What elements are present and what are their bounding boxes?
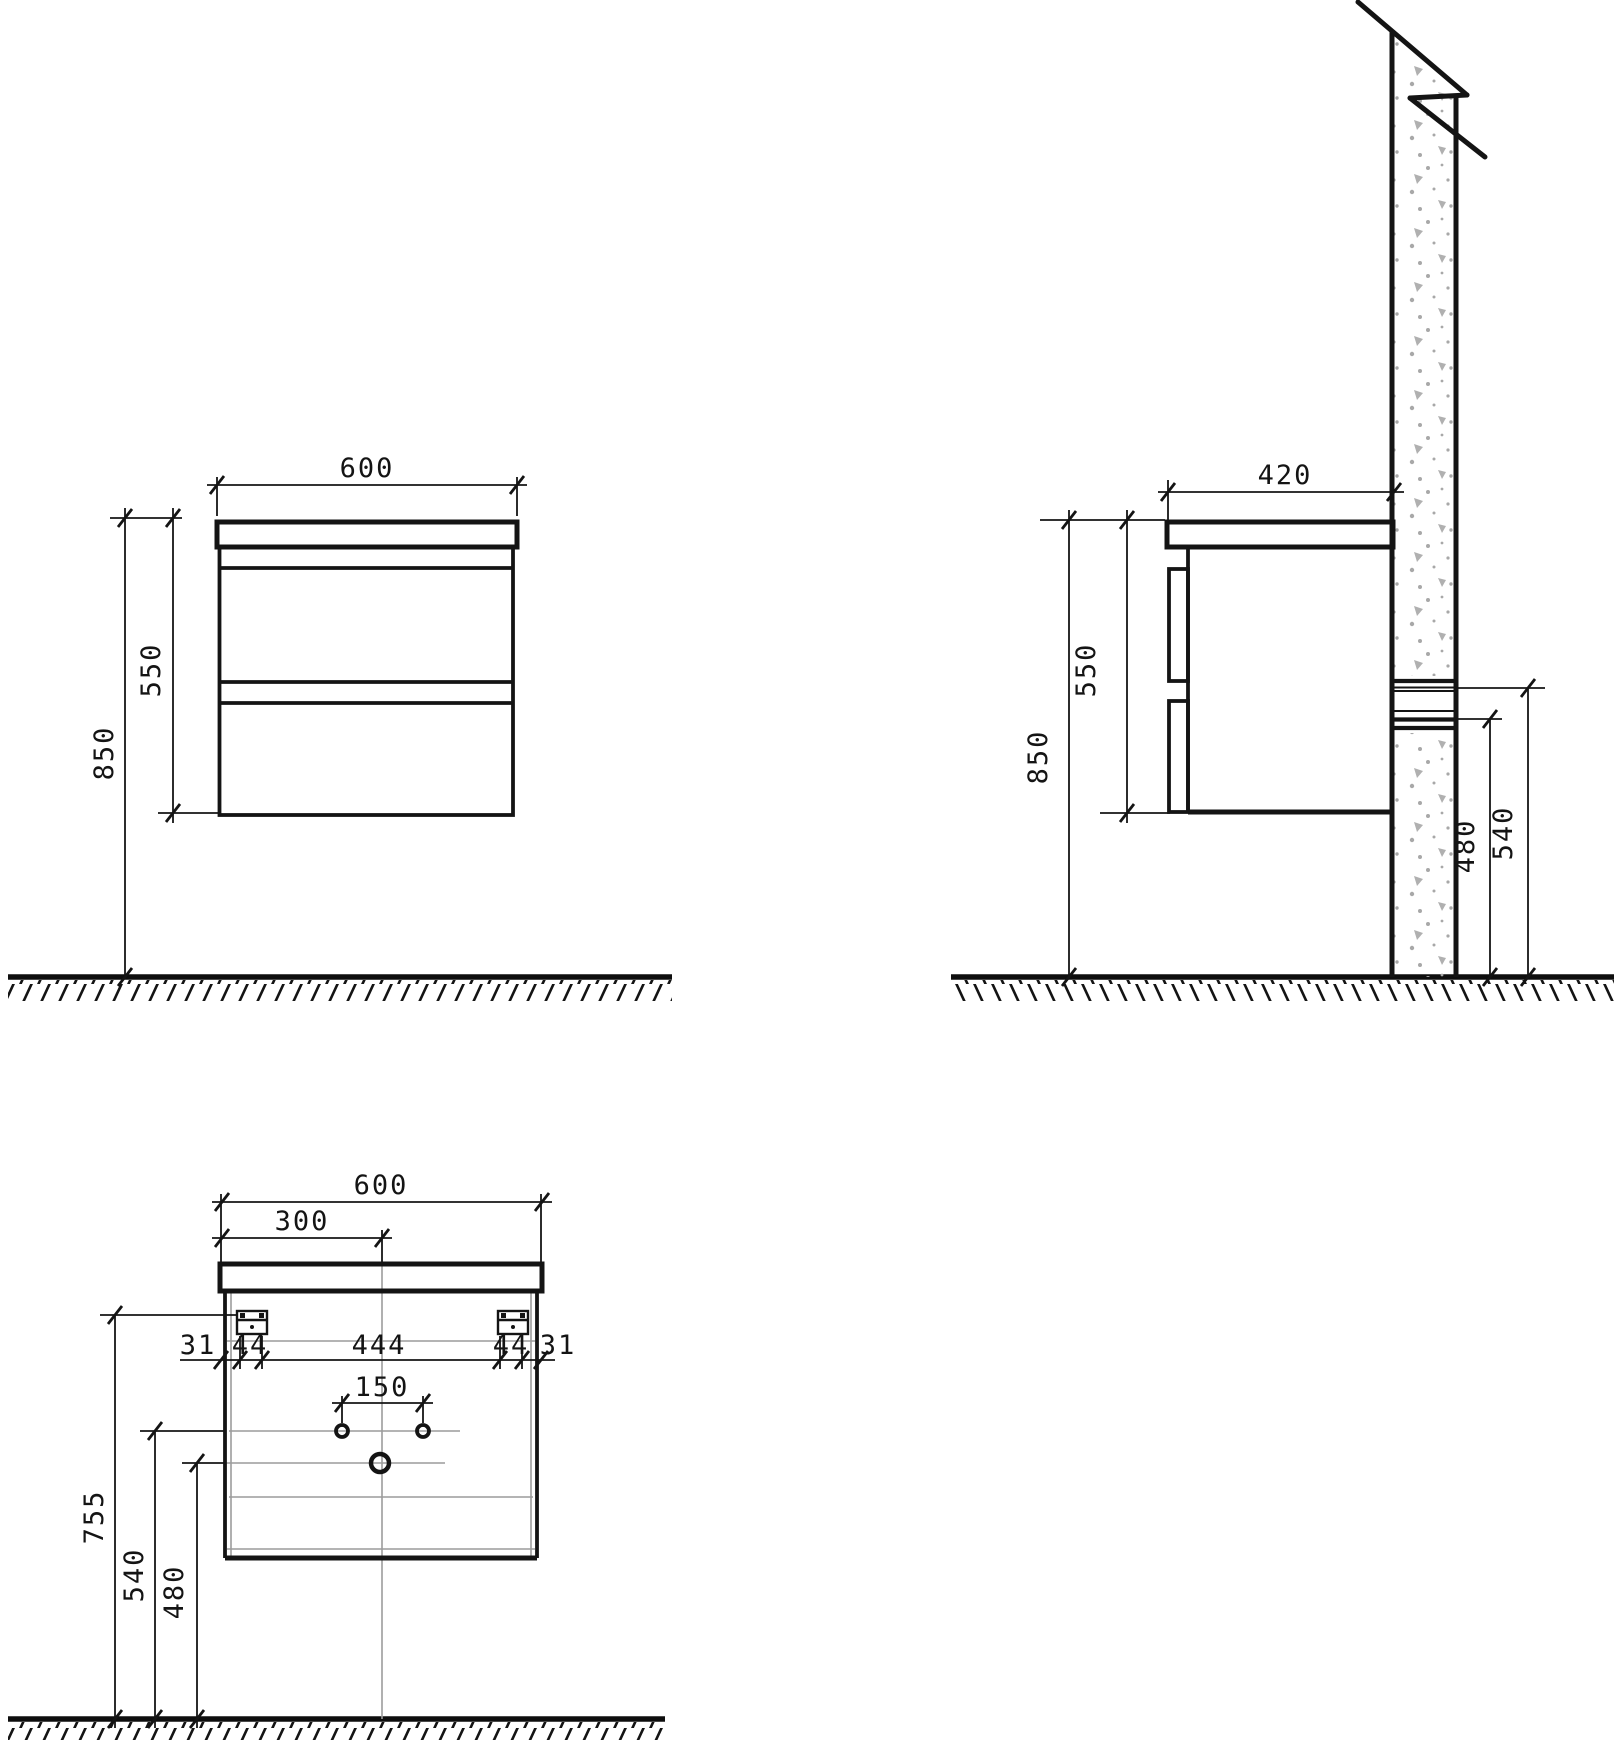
side-depth-label: 420: [1258, 460, 1313, 491]
back-cabinet: [220, 1264, 542, 1558]
side-floor: [951, 977, 1614, 1001]
wall-outlet-gap: [1389, 676, 1459, 733]
side-dim-heights: 850 550: [1023, 510, 1170, 986]
front-floor-hatch: [8, 980, 672, 1001]
vanity-technical-drawing: 600 850 550: [0, 0, 1624, 1740]
front-view: 600 850 550: [8, 453, 672, 1001]
drawing-page: 600 850 550: [0, 0, 1624, 1740]
side-cabinet: [1167, 522, 1394, 812]
side-cabinet-height-label: 550: [1071, 643, 1102, 698]
back-bracket-right-label: 44: [493, 1330, 530, 1361]
side-floor-hatch: [951, 980, 1614, 1001]
back-floor: [8, 1719, 665, 1740]
side-drawer1-front: [1169, 569, 1188, 681]
back-bracket-height-label: 755: [79, 1490, 110, 1545]
back-floor-hatch: [8, 1722, 665, 1740]
back-bracket-span-label: 444: [352, 1330, 407, 1361]
side-dim-outlets: 540 480: [1450, 679, 1545, 986]
front-dim-heights: 850 550: [89, 508, 221, 986]
side-dim-depth: 420: [1158, 460, 1404, 520]
side-drawer2-front: [1169, 701, 1188, 812]
side-outlet-lower-label: 480: [1450, 819, 1481, 874]
back-dim-brackets: 31 44 444 44 31: [180, 1330, 577, 1369]
back-countertop: [220, 1264, 542, 1291]
back-bracket-left-label: 44: [232, 1330, 269, 1361]
front-cabinet: [217, 522, 517, 815]
side-mount-height-label: 850: [1023, 730, 1054, 785]
side-outlet-upper-label: 540: [1488, 806, 1519, 861]
front-countertop: [217, 522, 517, 547]
back-faucet-height-label: 540: [119, 1548, 150, 1603]
wall-concrete-fill: [1392, 31, 1456, 977]
front-mount-height-label: 850: [89, 726, 120, 781]
front-cabinet-height-label: 550: [136, 643, 167, 698]
back-faucet-spacing-label: 150: [355, 1372, 410, 1403]
front-dim-width: 600: [207, 453, 527, 516]
back-drain-height-label: 480: [159, 1565, 190, 1620]
side-view: 420 850 550 540 480: [951, 2, 1614, 1001]
back-dim-center: 300: [212, 1206, 392, 1264]
back-margin-left-label: 31: [180, 1330, 217, 1361]
back-width-label: 600: [354, 1170, 409, 1201]
back-margin-right-label: 31: [540, 1330, 577, 1361]
back-center-offset-label: 300: [275, 1206, 330, 1237]
back-view: 600 300 31 44 444 44 31: [8, 1170, 665, 1740]
back-dim-heights: 755 540 480: [79, 1306, 237, 1728]
front-width-label: 600: [340, 453, 395, 484]
front-floor: [8, 977, 672, 1001]
side-countertop: [1167, 522, 1393, 547]
